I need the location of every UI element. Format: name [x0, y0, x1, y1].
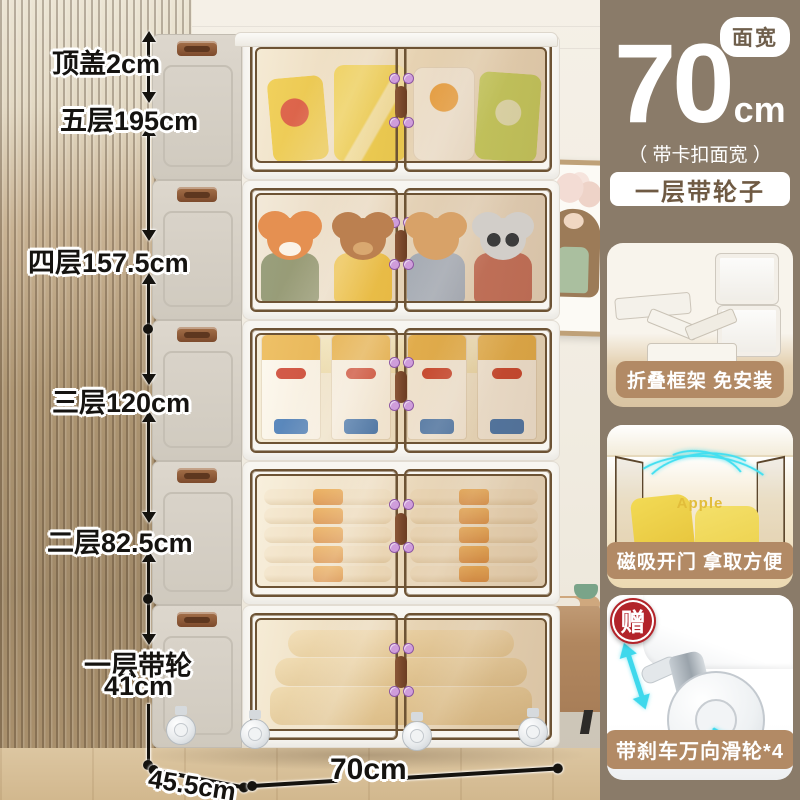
width-number: 70 [614, 21, 731, 146]
info-panel: 面宽 70cm （ 带卡扣面宽 ） 一层带轮子 折叠框架 免安装 Apple [600, 0, 800, 800]
tier-1-blanket [152, 605, 560, 748]
card-folding-frame: 折叠框架 免安装 [607, 243, 793, 407]
dim-label-width: 70cm [330, 753, 407, 787]
tier-3-milk [152, 320, 560, 461]
tier-front [242, 34, 560, 180]
measure-line-tier5 [147, 134, 150, 232]
door-knob [403, 117, 414, 128]
caster-wheel [166, 706, 196, 745]
left-door-frame [250, 613, 398, 740]
carry-handle [177, 612, 217, 627]
card1-badge: 折叠框架 免安装 [616, 361, 784, 398]
door-knob [403, 73, 414, 84]
cabinet-top-lid [234, 32, 558, 47]
carry-handle [177, 468, 217, 483]
folded-box [715, 253, 779, 305]
girl-dress [556, 247, 589, 294]
width-unit: cm [734, 89, 786, 130]
card2-badge: 磁吸开门 拿取方便 [607, 542, 793, 579]
caster-wheel [518, 708, 548, 747]
width-subnote: （ 带卡扣面宽 ） [600, 140, 800, 167]
right-door-frame [404, 42, 552, 172]
sofa-leg [580, 710, 593, 734]
dim-label-top-lid: 顶盖2cm [52, 42, 160, 81]
feature-pill: 一层带轮子 [610, 172, 790, 206]
door-knob [389, 73, 400, 84]
tier-front [242, 605, 560, 748]
dim-label-tier2: 二层82.5cm [47, 521, 193, 560]
caster-wheel [402, 712, 432, 751]
caster-wheel [240, 710, 270, 749]
dim-label-tier4: 四层157.5cm [28, 241, 189, 280]
right-door-frame [404, 469, 552, 597]
dim-label-tier1-value: 41cm [104, 671, 173, 702]
storage-cabinet [152, 34, 560, 774]
tier-front [242, 320, 560, 461]
carry-handle [177, 187, 217, 202]
door-knob [389, 117, 400, 128]
tier-4-plush [152, 180, 560, 320]
measure-line-tier3 [147, 420, 150, 514]
dim-label-tier3: 三层120cm [52, 381, 190, 420]
measure-line-tier1 [147, 704, 150, 762]
card3-badge: 带刹车万向滑轮*4 [607, 730, 793, 769]
door-handle [395, 86, 407, 118]
carry-handle [177, 41, 217, 56]
width-value: 70cm [614, 28, 786, 140]
tier-front [242, 461, 560, 605]
carry-handle [177, 327, 217, 342]
product-infographic: 顶盖2cm 五层195cm 四层157.5cm 三层120cm 二层82.5cm… [0, 0, 800, 800]
dim-label-tier5: 五层195cm [60, 99, 198, 138]
right-door-frame [404, 328, 552, 453]
gift-badge: 赠 [610, 598, 656, 644]
measure-dot [143, 594, 153, 604]
left-door-frame [250, 42, 398, 172]
left-door-frame [250, 328, 398, 453]
tier-5-snacks [152, 34, 560, 180]
card-caster-wheel: 赠 带刹车万向滑轮*4 [607, 595, 793, 780]
left-door-frame [250, 469, 398, 597]
tier-2-towels [152, 461, 560, 605]
card-magnetic-door: Apple 磁吸开门 拿取方便 [607, 425, 793, 588]
measure-dot [143, 324, 153, 334]
tier-front [242, 180, 560, 320]
